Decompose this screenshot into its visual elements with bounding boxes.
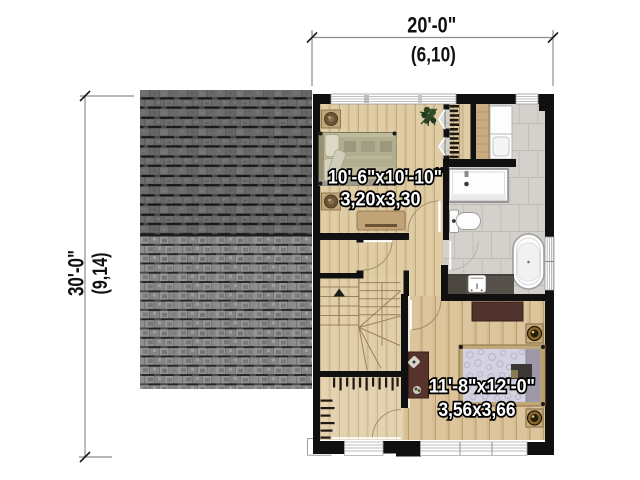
svg-text:3,56x3,66: 3,56x3,66 [439, 399, 516, 421]
svg-text:20'-0": 20'-0" [407, 13, 456, 38]
svg-text:(9,14): (9,14) [89, 253, 112, 295]
svg-text:(6,10): (6,10) [411, 44, 456, 67]
svg-text:30'-0": 30'-0" [63, 250, 88, 296]
svg-text:10'-6"x10'-10": 10'-6"x10'-10" [328, 167, 442, 189]
svg-text:11'-8"x12'-0": 11'-8"x12'-0" [429, 375, 535, 397]
svg-text:3,20x3,30: 3,20x3,30 [341, 189, 421, 211]
